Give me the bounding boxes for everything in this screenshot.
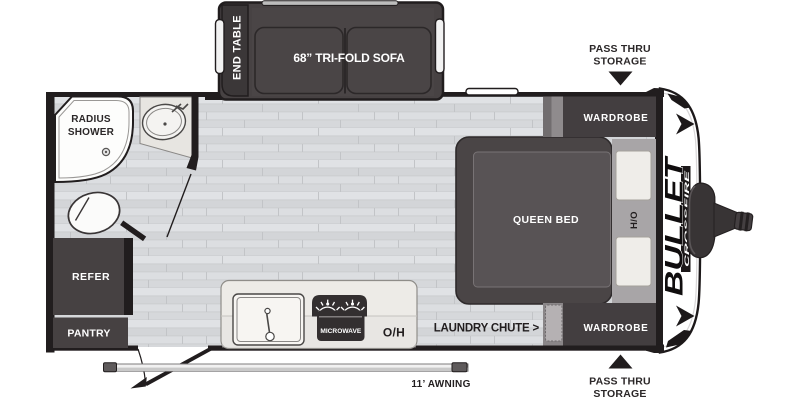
svg-text:STORAGE: STORAGE <box>593 388 646 400</box>
svg-text:REFER: REFER <box>72 271 110 283</box>
svg-text:68” TRI-FOLD SOFA: 68” TRI-FOLD SOFA <box>293 51 405 65</box>
svg-text:MICROWAVE: MICROWAVE <box>320 328 362 335</box>
svg-text:PASS THRU: PASS THRU <box>589 43 651 55</box>
svg-text:QUEEN BED: QUEEN BED <box>513 214 579 226</box>
svg-text:RADIUS: RADIUS <box>71 114 111 125</box>
svg-text:H/O: H/O <box>629 211 640 229</box>
svg-text:STORAGE: STORAGE <box>593 56 646 68</box>
svg-text:O/H: O/H <box>383 326 405 340</box>
svg-text:PASS THRU: PASS THRU <box>589 376 651 388</box>
svg-text:END TABLE: END TABLE <box>232 15 244 80</box>
svg-text:WARDROBE: WARDROBE <box>583 323 648 334</box>
svg-text:PANTRY: PANTRY <box>67 328 110 340</box>
svg-text:WARDROBE: WARDROBE <box>583 113 648 124</box>
svg-text:LAUNDRY CHUTE >: LAUNDRY CHUTE > <box>434 323 540 335</box>
svg-text:11’ AWNING: 11’ AWNING <box>411 379 470 390</box>
svg-text:SHOWER: SHOWER <box>68 127 115 138</box>
